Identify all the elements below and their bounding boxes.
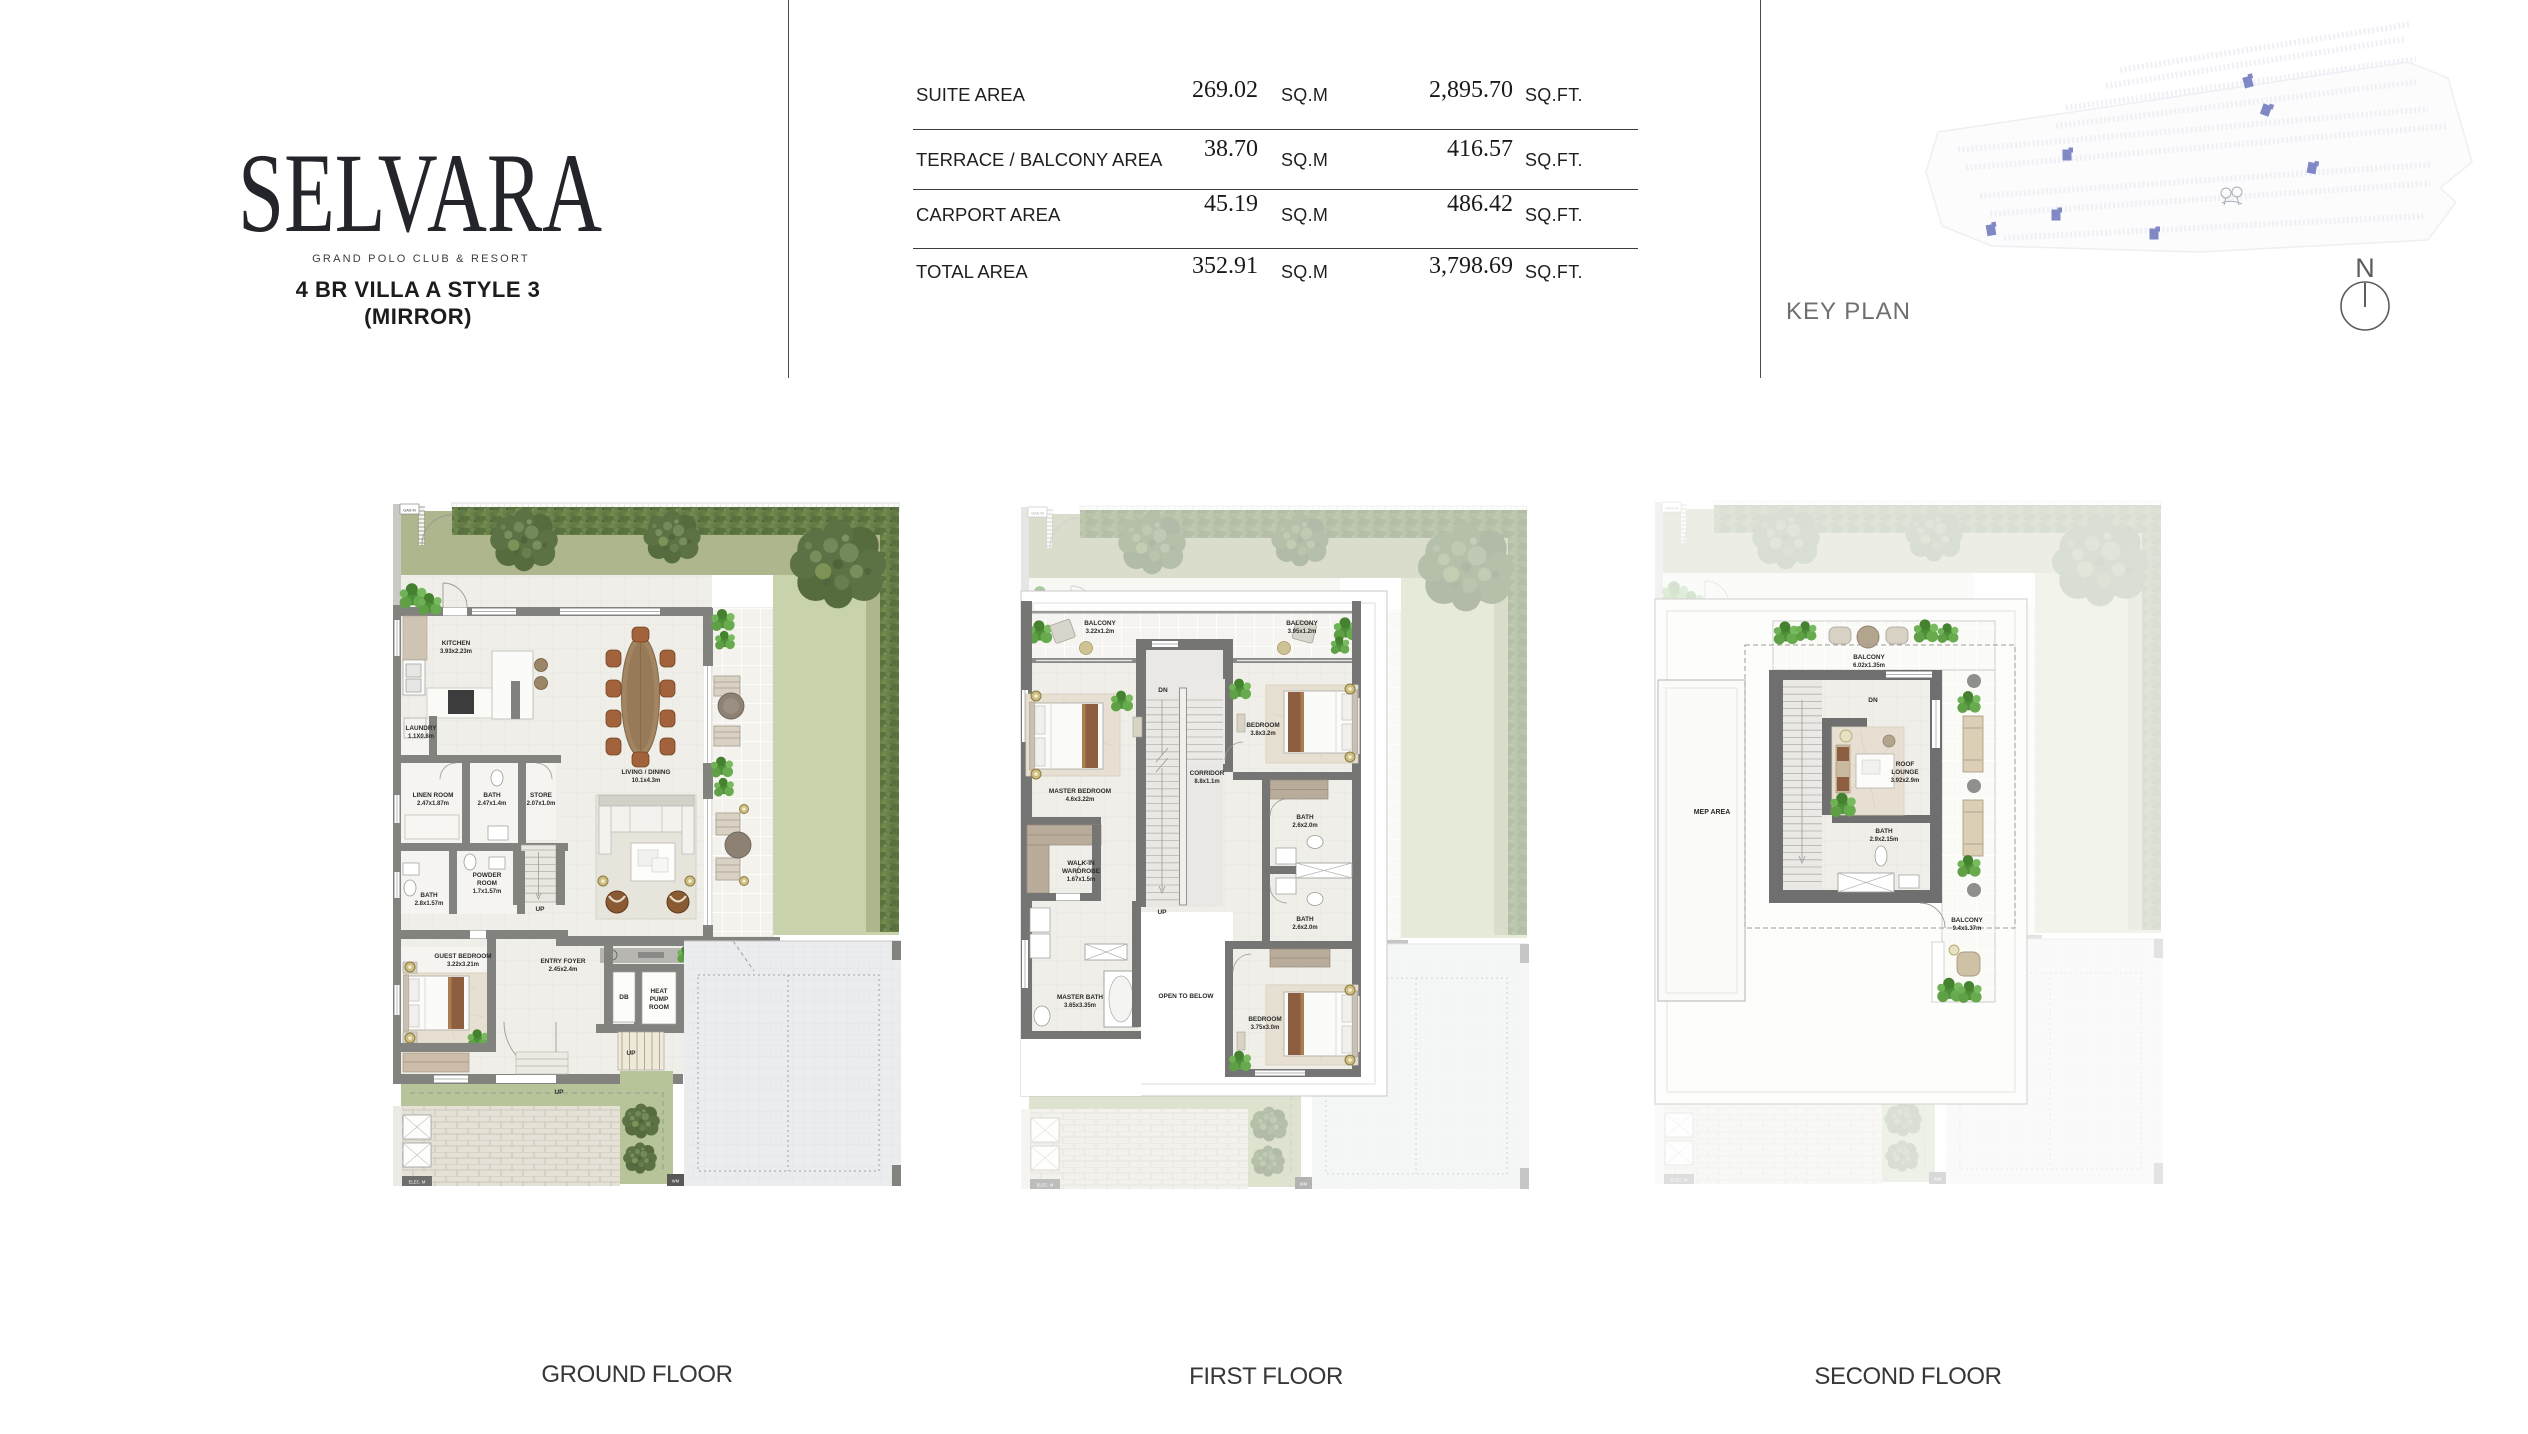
svg-text:WALK-IN: WALK-IN: [1067, 860, 1095, 867]
svg-text:10.1x4.3m: 10.1x4.3m: [632, 778, 661, 784]
svg-text:CORRIDOR: CORRIDOR: [1190, 770, 1225, 777]
svg-text:BALCONY: BALCONY: [1286, 620, 1318, 627]
svg-text:3.65x3.35m: 3.65x3.35m: [1064, 1003, 1096, 1009]
svg-text:2.45x2.4m: 2.45x2.4m: [549, 967, 578, 973]
svg-text:3.93x2.23m: 3.93x2.23m: [440, 649, 472, 655]
svg-text:BATH: BATH: [1875, 828, 1893, 835]
svg-text:2.6x2.0m: 2.6x2.0m: [1292, 925, 1317, 931]
svg-text:2.8x1.57m: 2.8x1.57m: [415, 901, 444, 907]
svg-text:6.02x1.35m: 6.02x1.35m: [1853, 663, 1885, 669]
svg-text:DN: DN: [1158, 687, 1168, 694]
svg-text:WARDROBE: WARDROBE: [1062, 868, 1101, 875]
svg-text:UP: UP: [535, 906, 545, 913]
svg-text:2.6x2.0m: 2.6x2.0m: [1292, 823, 1317, 829]
svg-text:PUMP: PUMP: [650, 996, 669, 1003]
svg-text:LOUNGE: LOUNGE: [1891, 769, 1919, 776]
svg-text:1.67x1.5m: 1.67x1.5m: [1067, 877, 1096, 883]
svg-text:STORE: STORE: [530, 792, 553, 799]
svg-text:KITCHEN: KITCHEN: [442, 640, 471, 647]
svg-text:LINEN ROOM: LINEN ROOM: [413, 792, 454, 799]
svg-text:8.8x1.1m: 8.8x1.1m: [1194, 779, 1219, 785]
svg-text:ROOM: ROOM: [649, 1004, 669, 1011]
svg-text:MASTER BEDROOM: MASTER BEDROOM: [1049, 788, 1111, 795]
svg-text:BATH: BATH: [420, 892, 438, 899]
svg-text:LAUNDRY: LAUNDRY: [405, 725, 437, 732]
svg-text:3.92x2.9m: 3.92x2.9m: [1891, 778, 1920, 784]
svg-text:BALCONY: BALCONY: [1084, 620, 1116, 627]
svg-text:3.22x3.21m: 3.22x3.21m: [447, 962, 479, 968]
svg-text:WM: WM: [672, 1179, 680, 1184]
svg-text:2.9x2.15m: 2.9x2.15m: [1870, 837, 1899, 843]
svg-text:ROOM: ROOM: [477, 880, 497, 887]
svg-text:BEDROOM: BEDROOM: [1246, 722, 1279, 729]
svg-text:ROOF: ROOF: [1896, 761, 1915, 768]
svg-text:BALCONY: BALCONY: [1951, 917, 1983, 924]
svg-text:1.1X0.8m: 1.1X0.8m: [408, 734, 434, 740]
svg-text:ENTRY FOYER: ENTRY FOYER: [540, 958, 585, 965]
svg-text:BATH: BATH: [483, 792, 501, 799]
svg-text:DB: DB: [619, 994, 629, 1001]
svg-text:GUEST BEDROOM: GUEST BEDROOM: [434, 953, 491, 960]
svg-text:BEDROOM: BEDROOM: [1248, 1016, 1281, 1023]
svg-text:1.7x1.57m: 1.7x1.57m: [473, 889, 502, 895]
svg-text:UP: UP: [554, 1089, 564, 1096]
svg-text:2.07x1.0m: 2.07x1.0m: [527, 801, 556, 807]
svg-text:MEP AREA: MEP AREA: [1694, 809, 1731, 816]
svg-text:N: N: [2355, 253, 2375, 283]
svg-text:3.95x1.2m: 3.95x1.2m: [1288, 629, 1317, 635]
svg-text:OPEN TO BELOW: OPEN TO BELOW: [1158, 993, 1214, 1000]
svg-text:BALCONY: BALCONY: [1853, 654, 1885, 661]
svg-text:BATH: BATH: [1296, 814, 1314, 821]
svg-text:3.8x3.2m: 3.8x3.2m: [1250, 731, 1275, 737]
svg-text:2.47x1.87m: 2.47x1.87m: [417, 801, 449, 807]
svg-text:MASTER BATH: MASTER BATH: [1057, 994, 1103, 1001]
svg-text:BATH: BATH: [1296, 916, 1314, 923]
svg-text:3.22x1.2m: 3.22x1.2m: [1086, 629, 1115, 635]
svg-text:HEAT: HEAT: [651, 988, 668, 995]
svg-text:DN: DN: [1868, 697, 1878, 704]
svg-text:2.47x1.4m: 2.47x1.4m: [478, 801, 507, 807]
svg-text:UP: UP: [1157, 909, 1167, 916]
svg-text:GAS M: GAS M: [403, 509, 415, 513]
svg-text:4.6x3.22m: 4.6x3.22m: [1066, 797, 1095, 803]
svg-text:9.4x1.37m: 9.4x1.37m: [1953, 926, 1982, 932]
svg-text:POWDER: POWDER: [473, 872, 502, 879]
svg-text:UP: UP: [626, 1050, 636, 1057]
svg-text:LIVING / DINING: LIVING / DINING: [622, 769, 671, 776]
svg-text:3.75x3.0m: 3.75x3.0m: [1251, 1025, 1280, 1031]
svg-text:ELEC. M: ELEC. M: [409, 1180, 426, 1185]
